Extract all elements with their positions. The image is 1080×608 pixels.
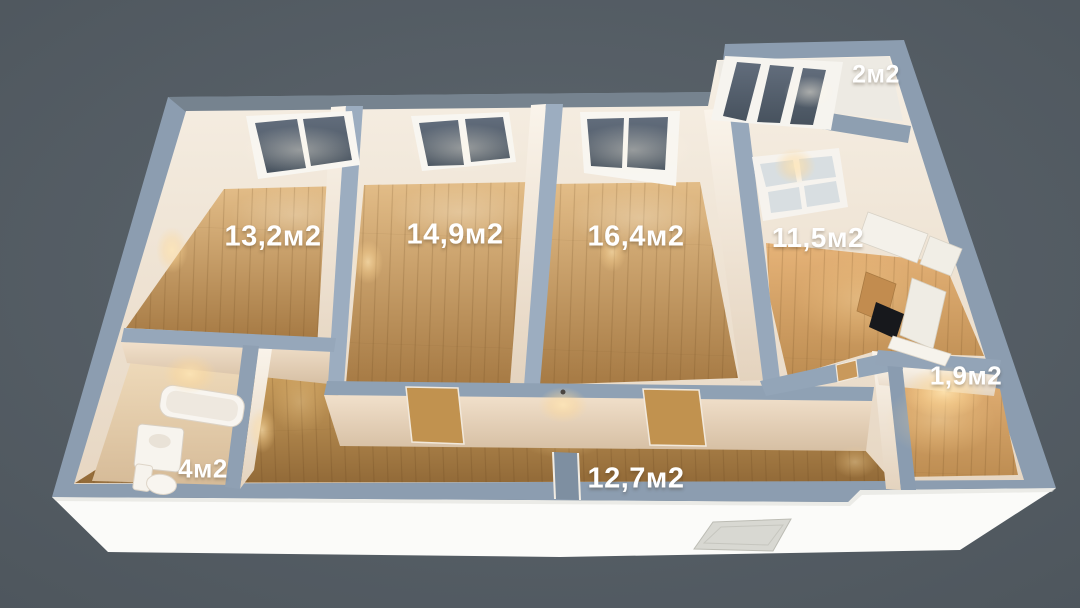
floor-plan-screenshot: 13,2м2 14,9м2 16,4м2 11,5м2 2м2 1,9м2 4м… bbox=[0, 0, 1080, 608]
entrance-door bbox=[553, 452, 580, 500]
floor-plan-render bbox=[0, 0, 1080, 608]
